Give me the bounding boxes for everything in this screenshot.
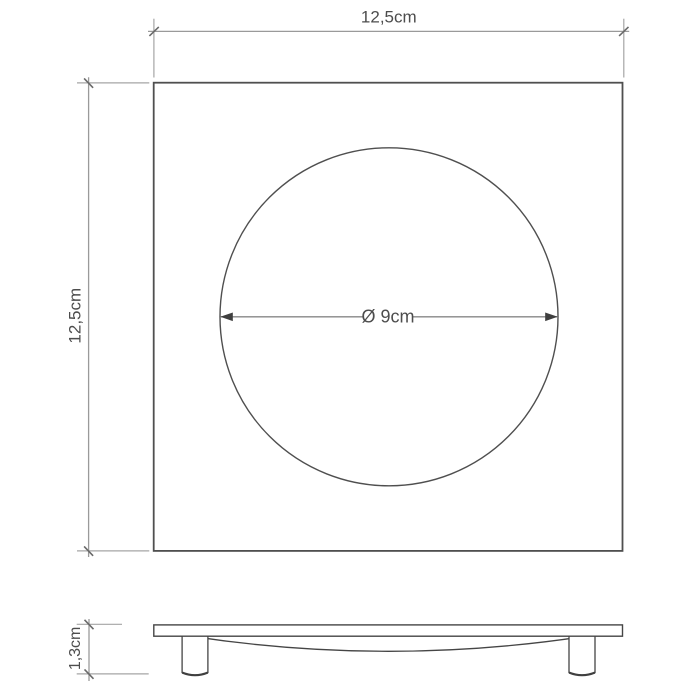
svg-text:1,3cm: 1,3cm [67,627,84,671]
svg-text:12,5cm: 12,5cm [361,7,417,26]
svg-text:12,5cm: 12,5cm [65,288,84,344]
svg-text:Ø 9cm: Ø 9cm [361,307,414,327]
